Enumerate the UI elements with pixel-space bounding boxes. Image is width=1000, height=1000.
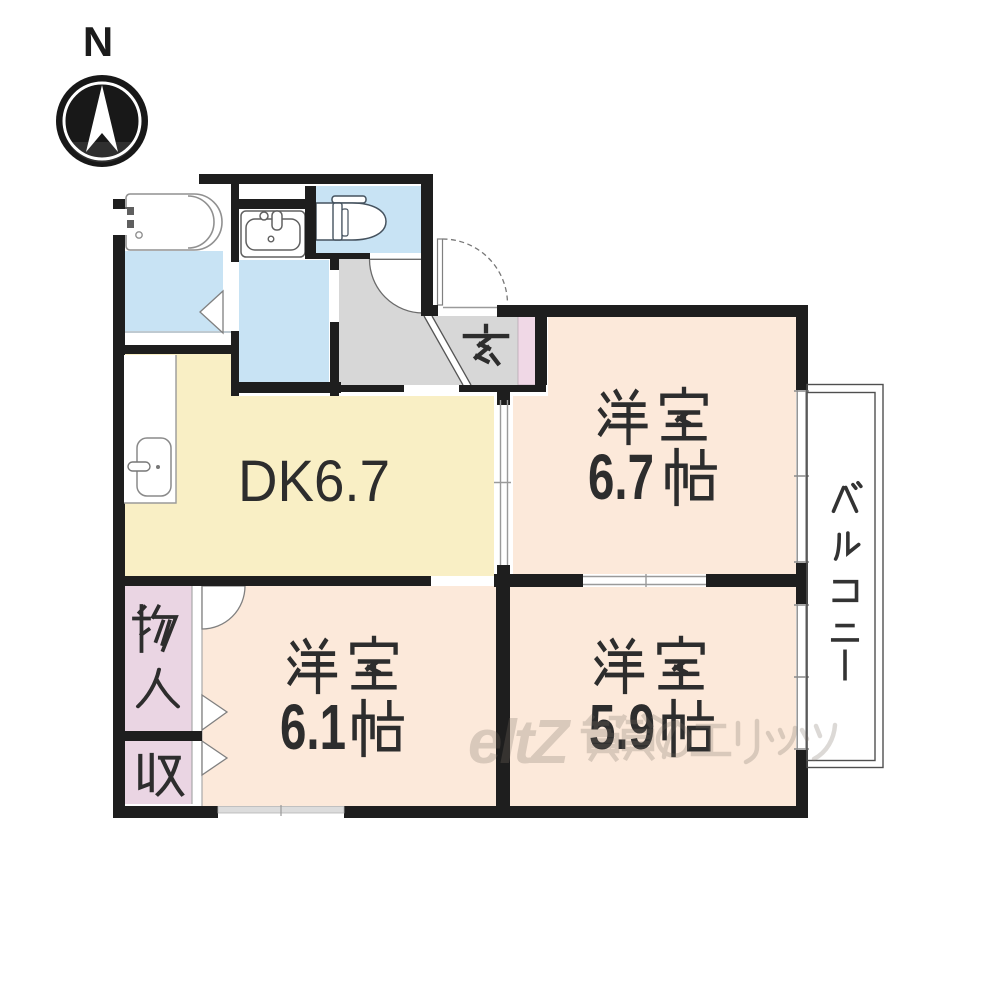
svg-text:6.7: 6.7 [588,441,654,513]
svg-text:6.1: 6.1 [280,691,346,763]
svg-text:DK6.7: DK6.7 [238,449,390,514]
svg-text:N: N [83,18,113,65]
svg-text:eltZ: eltZ [468,708,571,777]
